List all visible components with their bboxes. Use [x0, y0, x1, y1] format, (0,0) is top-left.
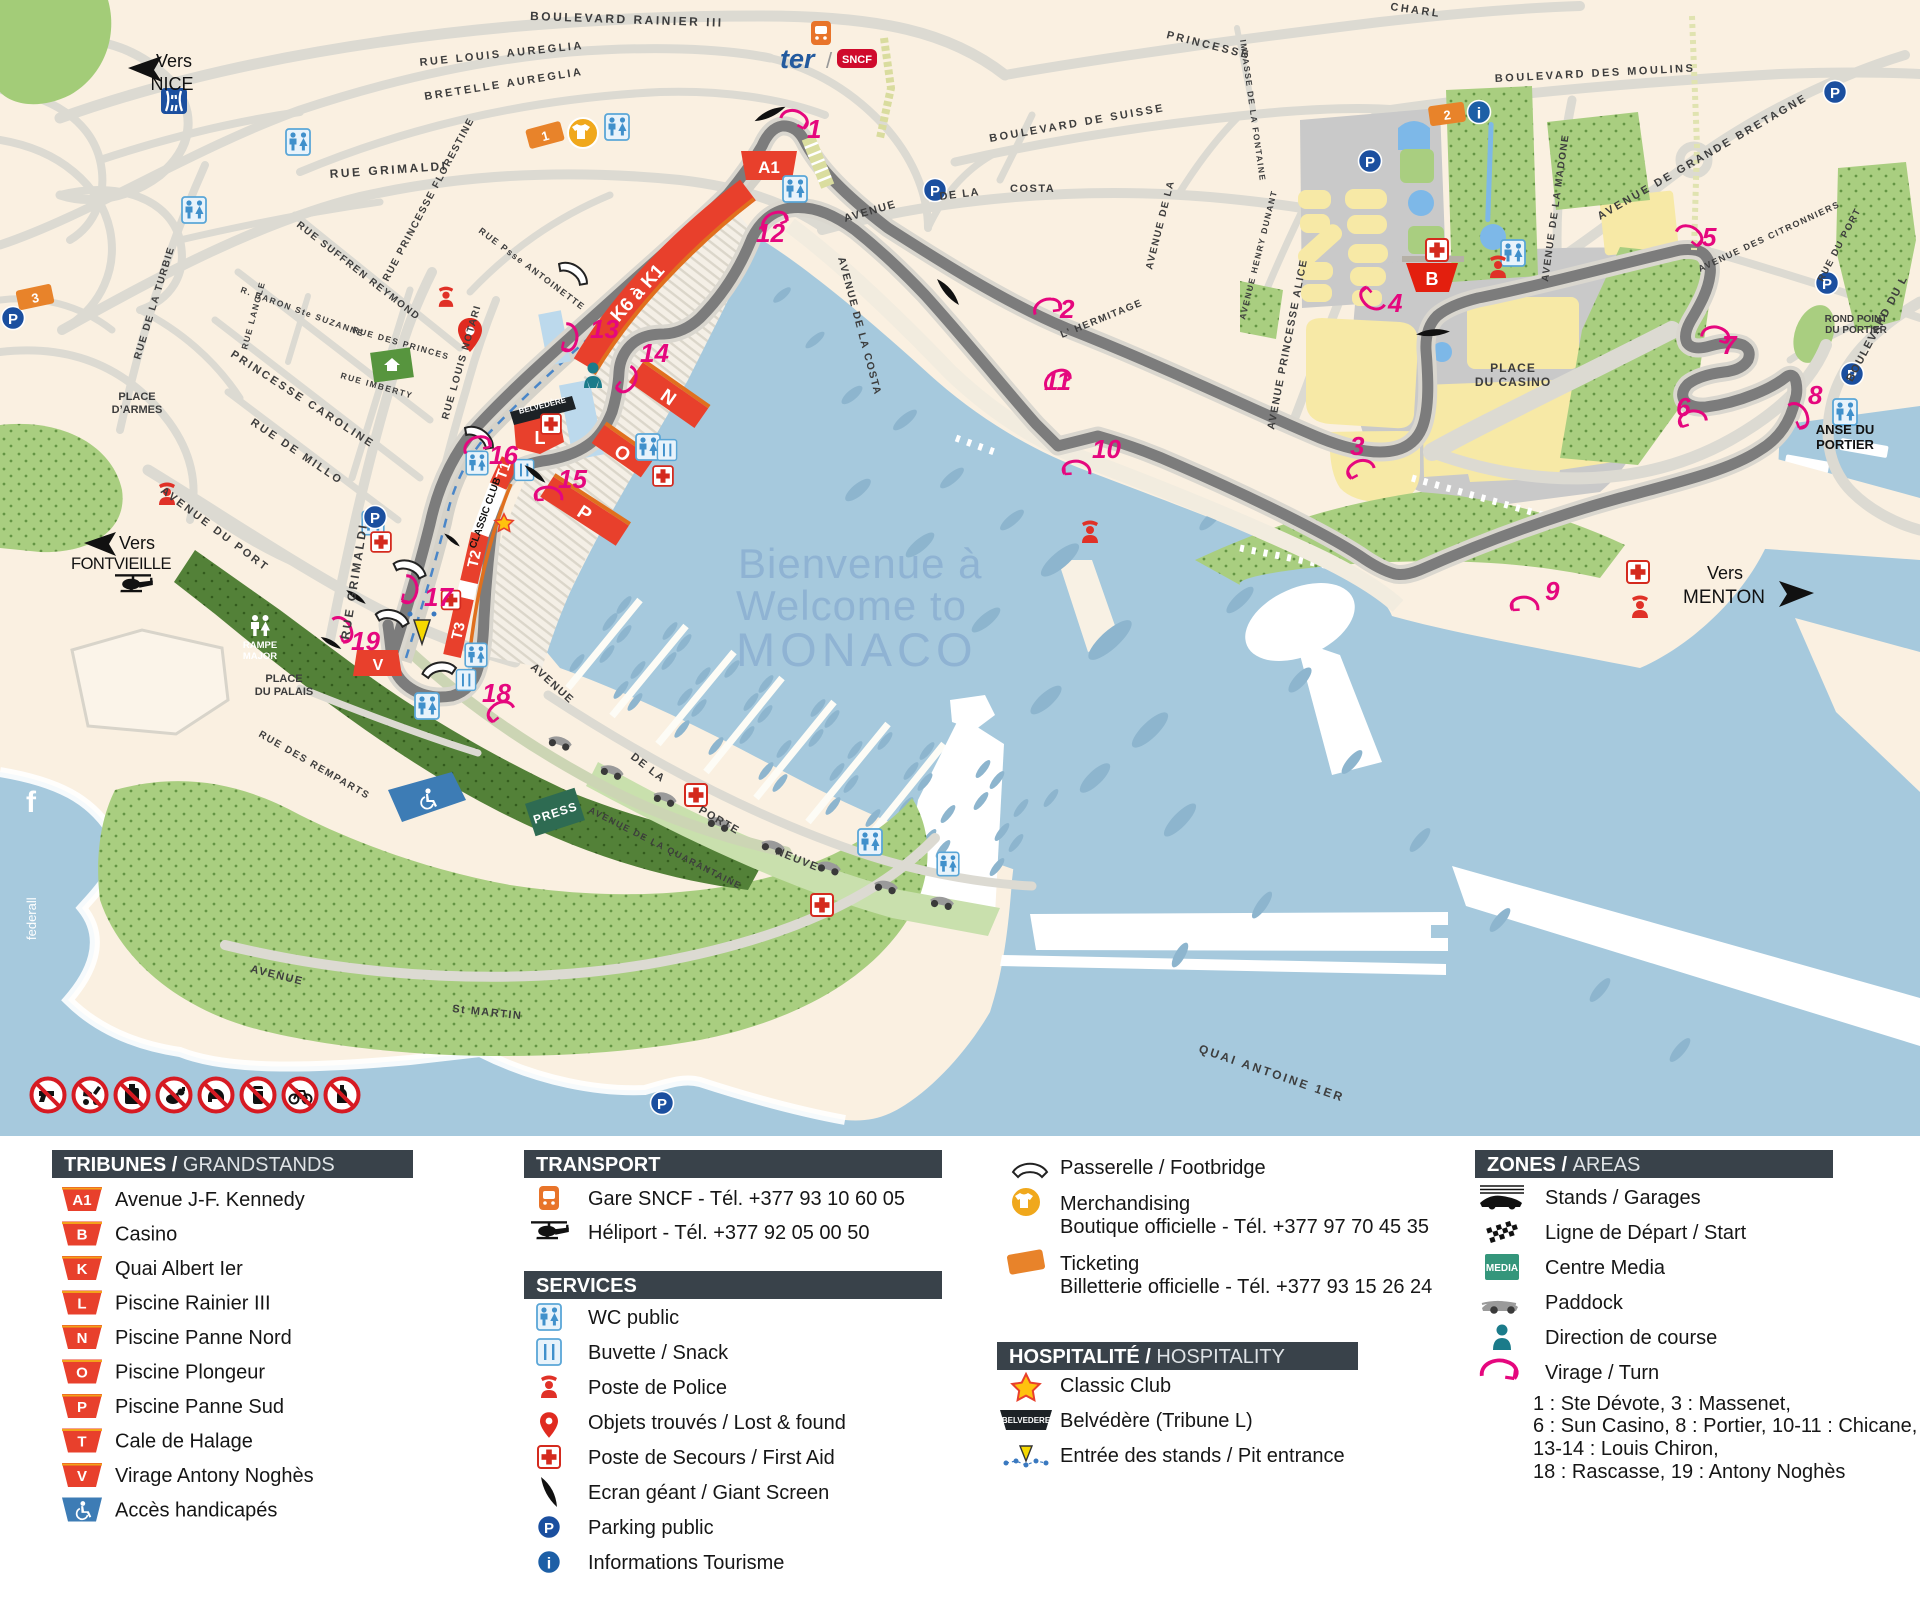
svg-text:19: 19 — [351, 626, 380, 656]
svg-text:17: 17 — [424, 582, 454, 612]
svg-text:Billetterie officielle - Tél.: Billetterie officielle - Tél. +377 93 15… — [1060, 1276, 1432, 1298]
svg-text:8: 8 — [1808, 380, 1823, 410]
svg-text:Welcome to: Welcome to — [736, 582, 967, 629]
svg-text:Virage Antony Noghès: Virage Antony Noghès — [115, 1465, 314, 1487]
svg-text:O: O — [76, 1365, 88, 1382]
svg-text:Virage / Turn: Virage / Turn — [1545, 1362, 1659, 1384]
svg-text:13-14 : Louis Chiron,: 13-14 : Louis Chiron, — [1533, 1438, 1719, 1460]
svg-text:9: 9 — [1545, 576, 1560, 606]
svg-text:Poste de Secours / First Aid: Poste de Secours / First Aid — [588, 1447, 835, 1469]
svg-text:Vers: Vers — [1707, 563, 1743, 583]
svg-text:RAMPE: RAMPE — [243, 640, 277, 651]
svg-text:Ticketing: Ticketing — [1060, 1253, 1139, 1275]
svg-text:Quai Albert Ier: Quai Albert Ier — [115, 1258, 243, 1280]
svg-text:ter: ter — [780, 44, 816, 74]
svg-text:/: / — [826, 48, 833, 73]
svg-text:DU PALAIS: DU PALAIS — [255, 686, 313, 698]
svg-text:V: V — [77, 1468, 87, 1485]
svg-text:Casino: Casino — [115, 1224, 177, 1246]
svg-text:f: f — [26, 786, 37, 819]
svg-text:PLACE: PLACE — [1490, 361, 1536, 375]
svg-text:D’ARMES: D’ARMES — [112, 404, 163, 416]
svg-text:10: 10 — [1092, 434, 1121, 464]
svg-text:Belvédère (Tribune L): Belvédère (Tribune L) — [1060, 1410, 1253, 1432]
svg-text:TRIBUNES / GRANDSTANDS: TRIBUNES / GRANDSTANDS — [64, 1154, 335, 1176]
svg-text:7: 7 — [1722, 330, 1738, 360]
svg-text:B: B — [77, 1227, 88, 1244]
svg-text:6 : Sun Casino, 8 : Portier, 1: 6 : Sun Casino, 8 : Portier, 10-11 : Chi… — [1533, 1415, 1917, 1437]
svg-text:Direction de course: Direction de course — [1545, 1327, 1717, 1349]
svg-text:MENTON: MENTON — [1683, 587, 1765, 608]
svg-text:Objets trouvés / Lost & found: Objets trouvés / Lost & found — [588, 1412, 846, 1434]
svg-text:Gare SNCF - Tél. +377 93 10 60: Gare SNCF - Tél. +377 93 10 60 05 — [588, 1188, 905, 1210]
svg-text:Piscine Plongeur: Piscine Plongeur — [115, 1362, 265, 1384]
svg-text:HOSPITALITÉ / HOSPITALITY: HOSPITALITÉ / HOSPITALITY — [1009, 1345, 1285, 1368]
svg-text:16: 16 — [489, 440, 518, 470]
svg-text:P: P — [77, 1399, 87, 1416]
svg-text:TRANSPORT: TRANSPORT — [536, 1154, 660, 1176]
svg-text:WC public: WC public — [588, 1307, 679, 1329]
svg-text:COSTA: COSTA — [1010, 183, 1055, 195]
svg-text:Vers: Vers — [119, 533, 155, 553]
svg-text:K: K — [77, 1261, 88, 1278]
svg-text:1 : Ste Dévote, 3 : Massenet,: 1 : Ste Dévote, 3 : Massenet, — [1533, 1393, 1791, 1415]
svg-text:Buvette / Snack: Buvette / Snack — [588, 1342, 729, 1364]
svg-text:4: 4 — [1387, 288, 1403, 318]
svg-text:Piscine Panne Nord: Piscine Panne Nord — [115, 1327, 292, 1349]
svg-text:ROND POINT: ROND POINT — [1825, 314, 1888, 325]
svg-text:V: V — [373, 657, 384, 674]
svg-text:MONACO: MONACO — [736, 623, 978, 676]
svg-text:Ecran géant / Giant Screen: Ecran géant / Giant Screen — [588, 1482, 829, 1504]
svg-text:Passerelle / Footbridge: Passerelle / Footbridge — [1060, 1157, 1266, 1179]
svg-text:DU PORTIER: DU PORTIER — [1825, 325, 1887, 336]
svg-text:Merchandising: Merchandising — [1060, 1193, 1190, 1215]
svg-text:Paddock: Paddock — [1545, 1292, 1624, 1314]
svg-text:Parking public: Parking public — [588, 1517, 714, 1539]
svg-text:Stands / Garages: Stands / Garages — [1545, 1187, 1701, 1209]
svg-text:L: L — [77, 1296, 86, 1313]
svg-text:federall: federall — [24, 897, 39, 940]
svg-text:Informations Tourisme: Informations Tourisme — [588, 1552, 784, 1574]
svg-text:Centre Media: Centre Media — [1545, 1257, 1666, 1279]
svg-text:MEDIA: MEDIA — [1486, 1263, 1518, 1274]
svg-text:ZONES / AREAS: ZONES / AREAS — [1487, 1154, 1640, 1176]
svg-text:3: 3 — [1350, 431, 1365, 461]
svg-text:13: 13 — [590, 314, 619, 344]
svg-text:1: 1 — [807, 114, 821, 144]
svg-text:Entrée des stands / Pit entran: Entrée des stands / Pit entrance — [1060, 1445, 1345, 1467]
svg-text:Classic Club: Classic Club — [1060, 1375, 1171, 1397]
svg-text:SERVICES: SERVICES — [536, 1275, 637, 1297]
svg-text:Cale de Halage: Cale de Halage — [115, 1431, 253, 1453]
svg-text:A1: A1 — [758, 158, 780, 177]
svg-text:Vers: Vers — [156, 51, 192, 71]
svg-text:Boutique officielle - Tél. +37: Boutique officielle - Tél. +377 97 70 45… — [1060, 1216, 1429, 1238]
svg-text:N: N — [77, 1330, 88, 1347]
svg-text:BELVEDERE: BELVEDERE — [1002, 1416, 1051, 1425]
svg-text:18 : Rascasse, 19 : Antony Nog: 18 : Rascasse, 19 : Antony Noghès — [1533, 1461, 1845, 1483]
svg-text:Piscine Panne Sud: Piscine Panne Sud — [115, 1396, 284, 1418]
svg-text:SNCF: SNCF — [842, 54, 872, 66]
svg-text:B: B — [1426, 269, 1439, 289]
svg-text:MAJOR: MAJOR — [243, 651, 277, 662]
svg-text:Poste de Police: Poste de Police — [588, 1377, 727, 1399]
svg-text:Héliport - Tél. +377 92 05 00: Héliport - Tél. +377 92 05 00 50 — [588, 1222, 869, 1244]
svg-text:Piscine Rainier III: Piscine Rainier III — [115, 1293, 271, 1315]
svg-text:15: 15 — [558, 464, 587, 494]
svg-text:PLACE: PLACE — [265, 673, 302, 685]
svg-text:6: 6 — [1676, 392, 1691, 422]
svg-text:14: 14 — [640, 338, 669, 368]
svg-text:Avenue J-F. Kennedy: Avenue J-F. Kennedy — [115, 1189, 305, 1211]
svg-text:PORTIER: PORTIER — [1816, 437, 1874, 452]
svg-text:DU CASINO: DU CASINO — [1475, 375, 1551, 389]
svg-text:A1: A1 — [72, 1192, 91, 1209]
svg-text:5: 5 — [1702, 222, 1717, 252]
svg-text:Bienvenue à: Bienvenue à — [738, 540, 983, 587]
svg-text:T: T — [77, 1434, 86, 1451]
svg-text:ANSE DU: ANSE DU — [1816, 422, 1875, 437]
svg-text:FONTVIEILLE: FONTVIEILLE — [71, 555, 171, 573]
svg-text:Accès handicapés: Accès handicapés — [115, 1500, 277, 1522]
svg-text:Ligne de Départ / Start: Ligne de Départ / Start — [1545, 1222, 1747, 1244]
svg-text:PLACE: PLACE — [118, 391, 155, 403]
